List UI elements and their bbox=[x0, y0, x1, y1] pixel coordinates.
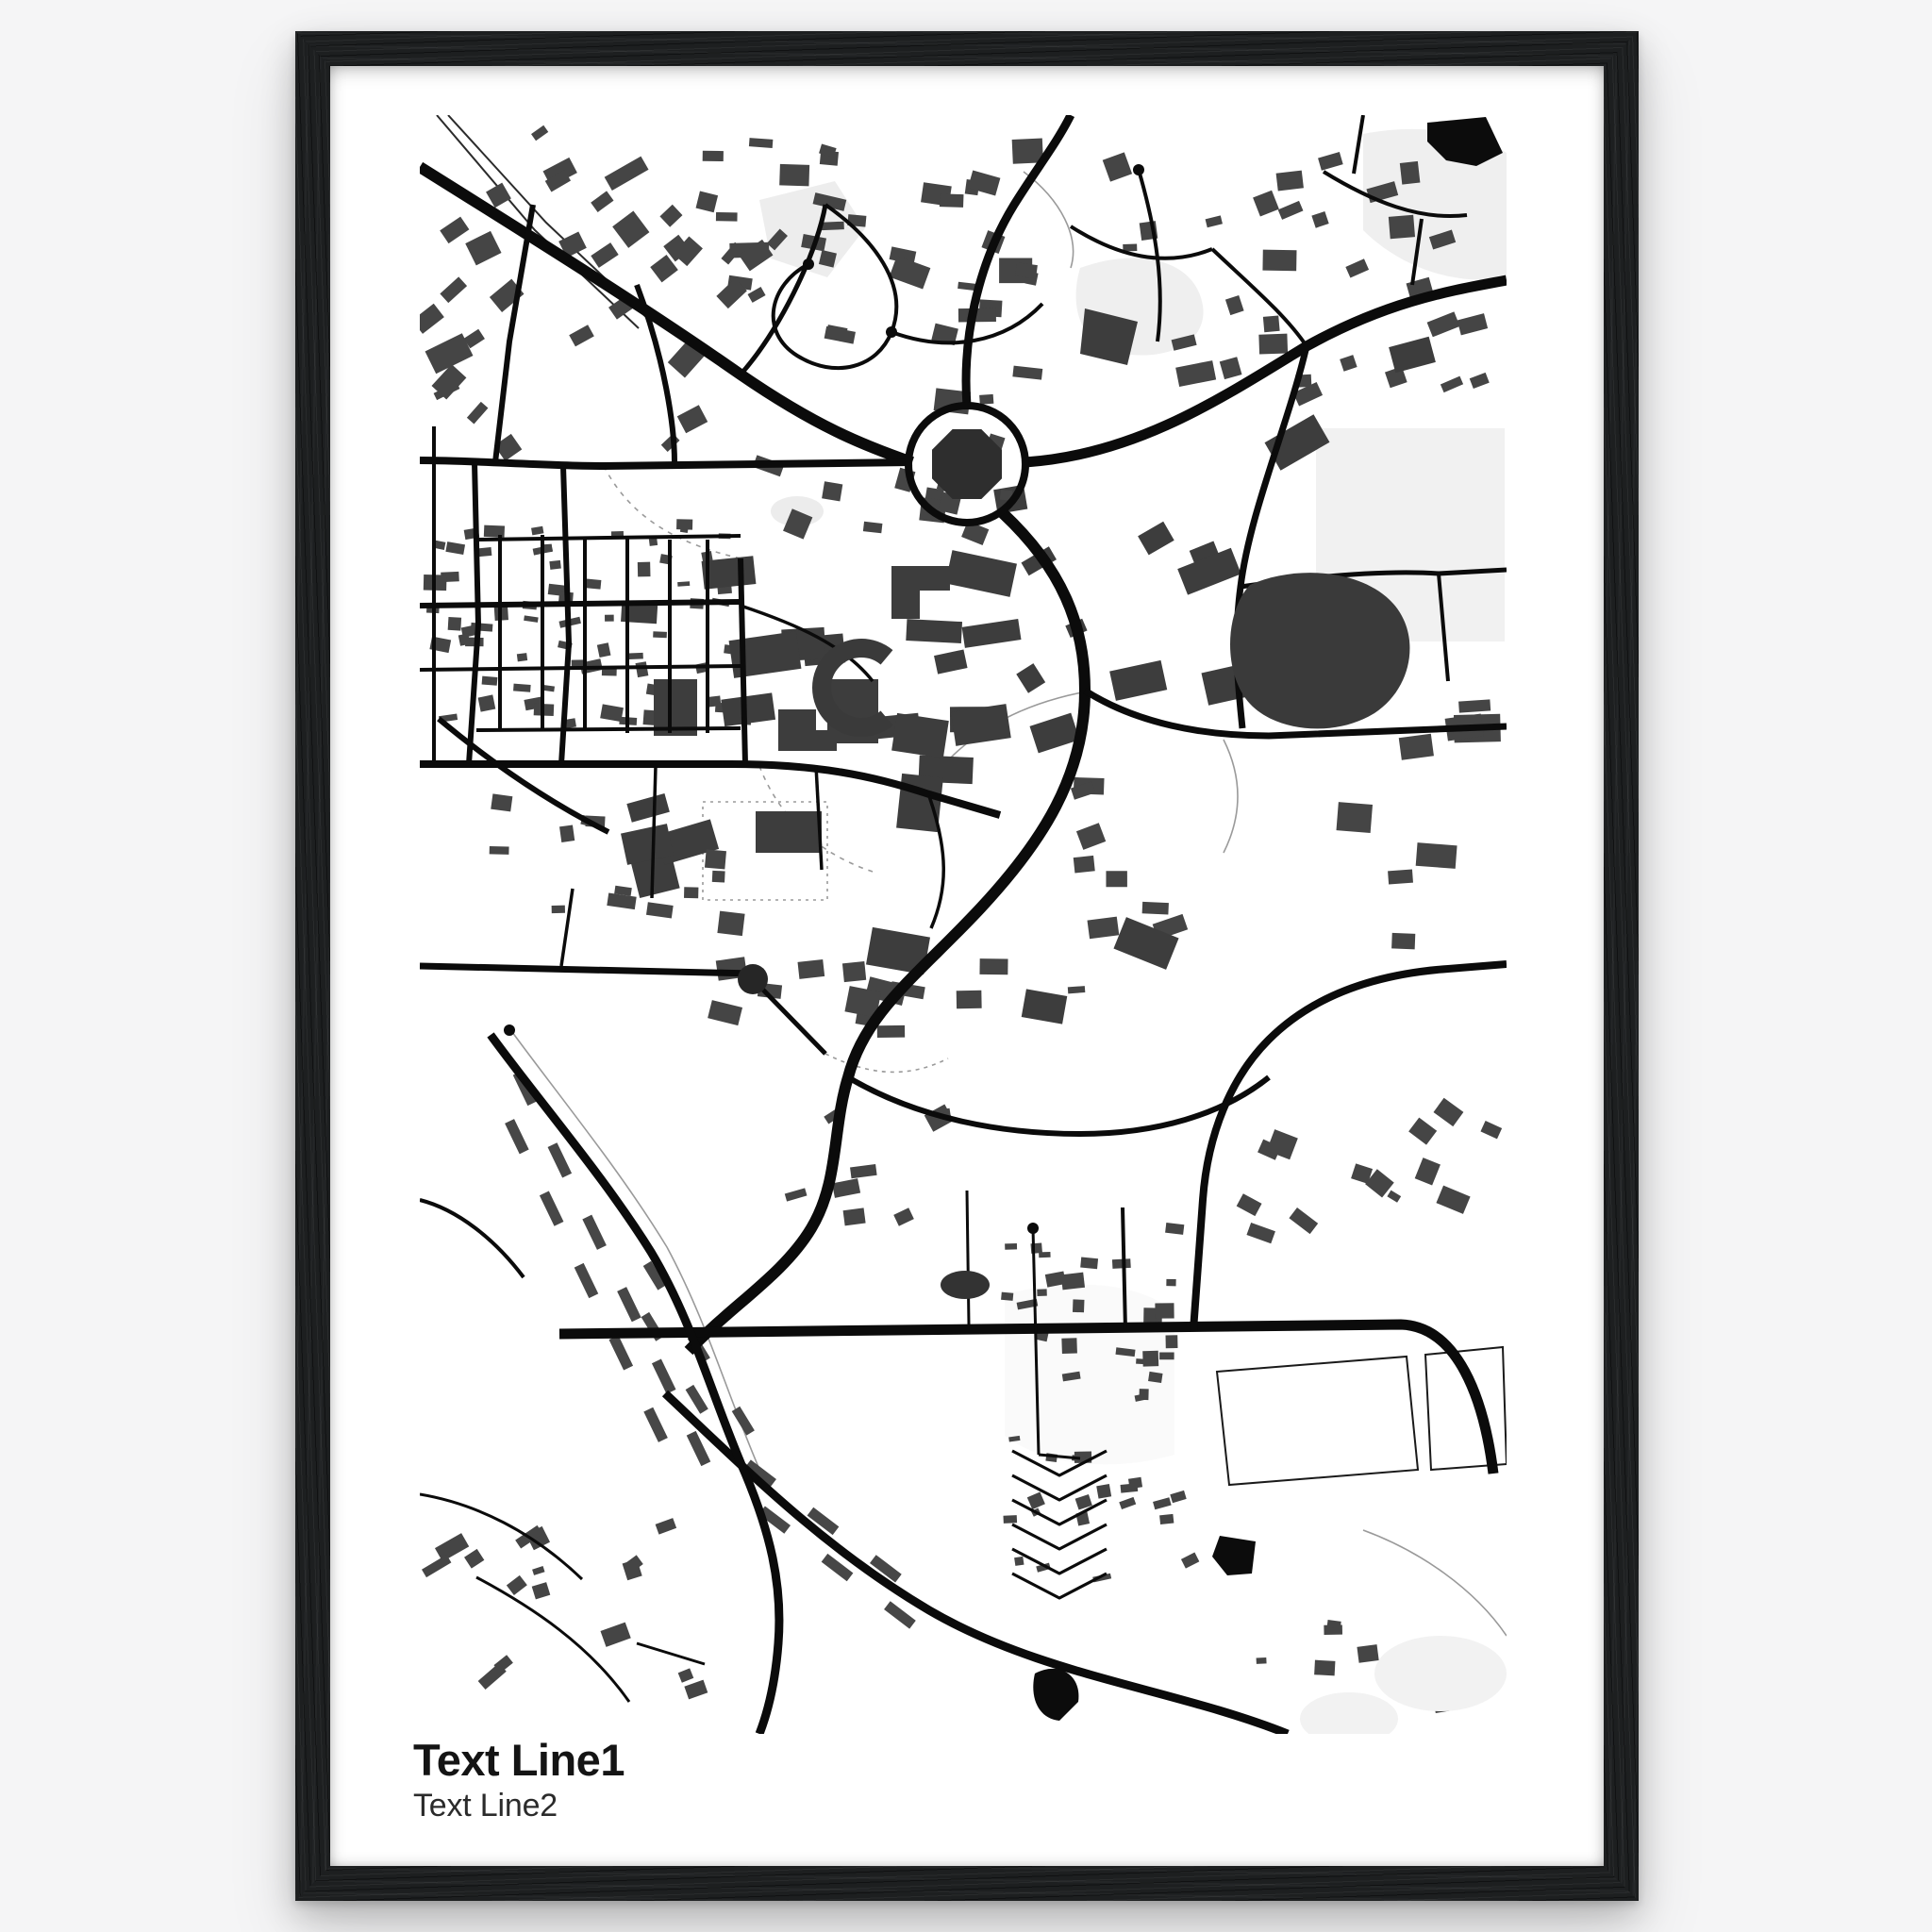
frame-bar-bottom bbox=[295, 1866, 1639, 1901]
map-svg bbox=[420, 115, 1507, 1734]
page-background: Text Line1 Text Line2 bbox=[0, 0, 1932, 1932]
poster: Text Line1 Text Line2 bbox=[330, 66, 1604, 1866]
picture-frame: Text Line1 Text Line2 bbox=[295, 31, 1639, 1901]
frame-bar-right bbox=[1604, 31, 1639, 1901]
caption-line1: Text Line1 bbox=[413, 1736, 625, 1786]
city-map-graphic bbox=[420, 115, 1507, 1734]
frame-bar-top bbox=[295, 31, 1639, 66]
caption-line2: Text Line2 bbox=[413, 1788, 625, 1824]
frame-bar-left bbox=[295, 31, 330, 1901]
caption: Text Line1 Text Line2 bbox=[413, 1736, 625, 1824]
